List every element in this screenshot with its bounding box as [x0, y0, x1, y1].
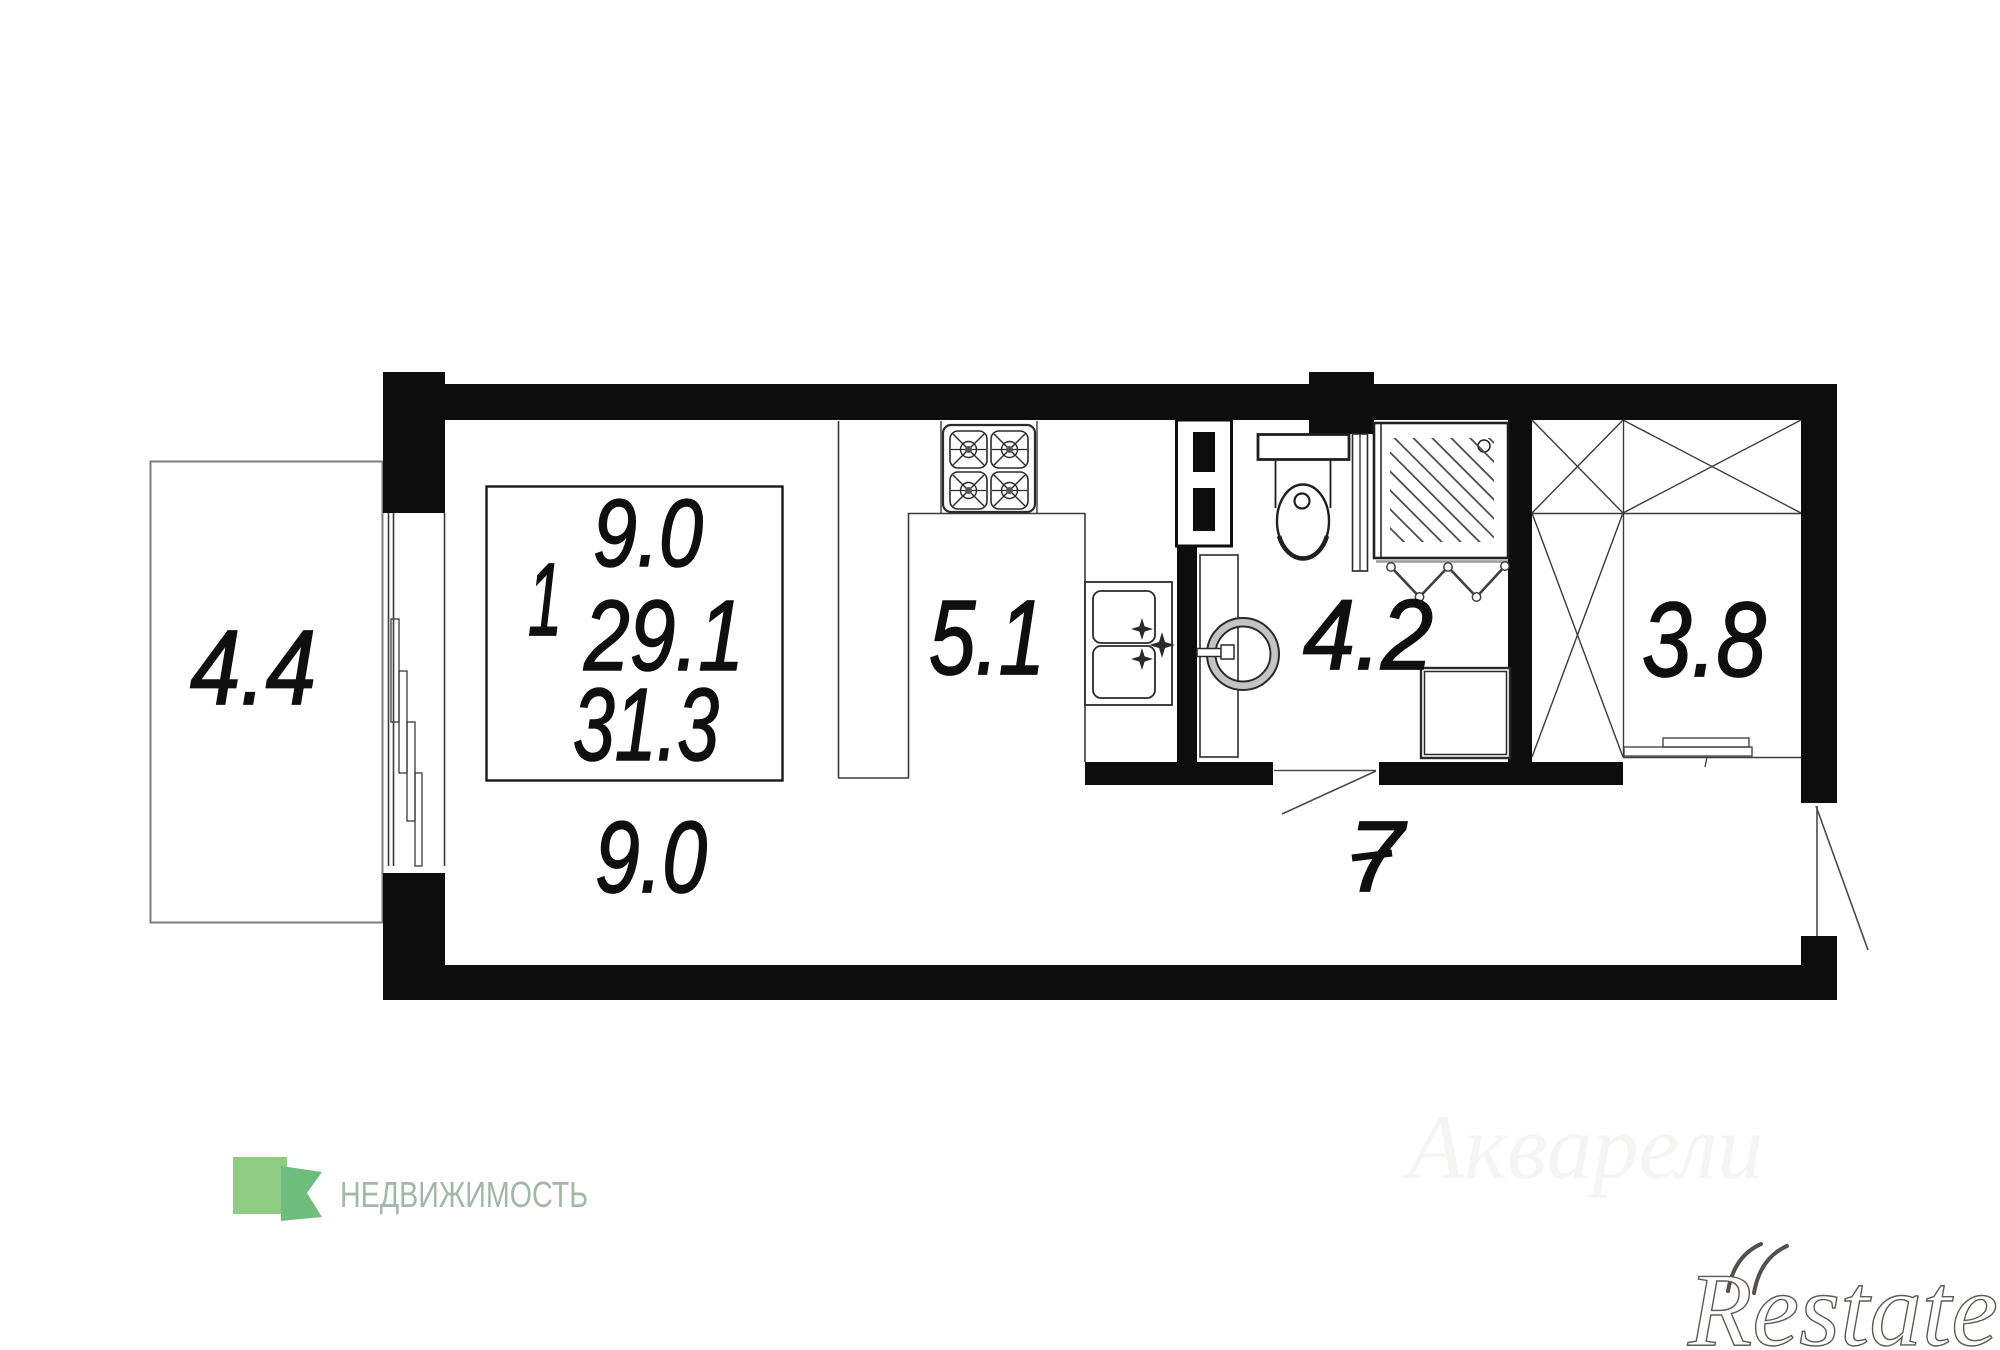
svg-text:5.1: 5.1: [929, 579, 1045, 697]
svg-text:9.0: 9.0: [593, 480, 703, 587]
svg-text:4.4: 4.4: [190, 609, 316, 727]
svg-text:3.8: 3.8: [1642, 581, 1766, 699]
svg-text:Restate: Restate: [1687, 1251, 1998, 1350]
svg-text:31.3: 31.3: [573, 667, 719, 782]
svg-text:4.2: 4.2: [1303, 579, 1433, 690]
svg-text:1: 1: [528, 542, 562, 657]
svg-text:9.0: 9.0: [595, 802, 707, 914]
svg-text:НЕДВИЖИМОСТЬ: НЕДВИЖИМОСТЬ: [340, 1174, 588, 1215]
svg-text:Акварели: Акварели: [1402, 1096, 1763, 1198]
